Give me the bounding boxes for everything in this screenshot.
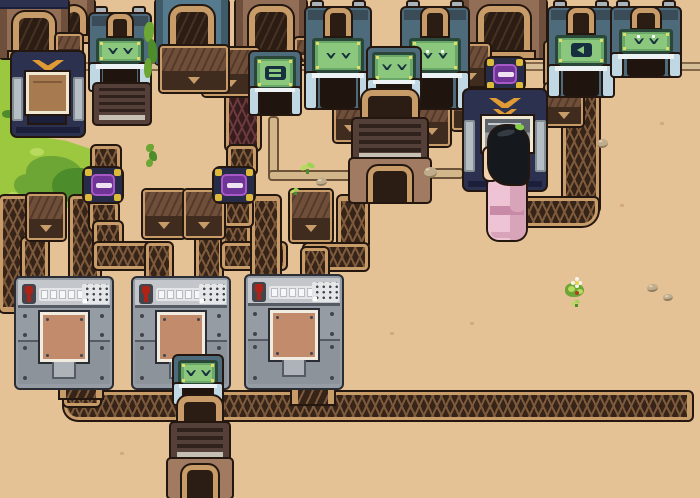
- hanging-vine: [144, 22, 158, 80]
- sand-speck: [470, 322, 474, 325]
- sorter-machine[interactable]: [549, 0, 613, 96]
- wing-machine[interactable]: [12, 52, 84, 136]
- processor[interactable]: [168, 396, 232, 498]
- conveyor-belt[interactable]: [94, 243, 152, 269]
- sand-sprout: [300, 163, 316, 179]
- conveyor-belt[interactable]: [338, 196, 368, 248]
- pebble: [646, 283, 658, 292]
- hanging-vine: [146, 144, 158, 168]
- sand-speck: [660, 122, 664, 125]
- conveyor-belt[interactable]: [196, 232, 222, 284]
- sorter-machine[interactable]: [90, 6, 150, 90]
- pebble: [315, 177, 327, 186]
- game-viewport: [0, 0, 700, 498]
- crate[interactable]: [160, 46, 228, 92]
- conveyor-belt[interactable]: [252, 196, 280, 288]
- assembler[interactable]: [246, 276, 342, 388]
- conveyor-belt[interactable]: [64, 392, 692, 420]
- filter-node[interactable]: [214, 168, 254, 202]
- sand-speck: [120, 452, 124, 455]
- pebble: [663, 293, 674, 301]
- sand-speck: [620, 204, 624, 207]
- crate[interactable]: [143, 190, 185, 238]
- sorter-machine[interactable]: [612, 0, 680, 76]
- villager[interactable]: [484, 126, 530, 246]
- ground-pipe: [268, 116, 279, 178]
- mini-sorter[interactable]: [250, 52, 300, 114]
- sand-sprout: [571, 300, 587, 316]
- filter-node[interactable]: [486, 58, 524, 90]
- conveyor-belt[interactable]: [518, 198, 598, 226]
- crate[interactable]: [27, 194, 65, 240]
- sand-sprout: [290, 188, 306, 204]
- pebble: [596, 138, 608, 148]
- sand-speck: [390, 332, 394, 335]
- assembler[interactable]: [16, 278, 112, 388]
- conveyor-belt[interactable]: [224, 200, 252, 226]
- vent-box[interactable]: [94, 84, 150, 124]
- processor[interactable]: [350, 90, 430, 202]
- desert-flower: [565, 277, 587, 301]
- filter-node[interactable]: [84, 168, 122, 202]
